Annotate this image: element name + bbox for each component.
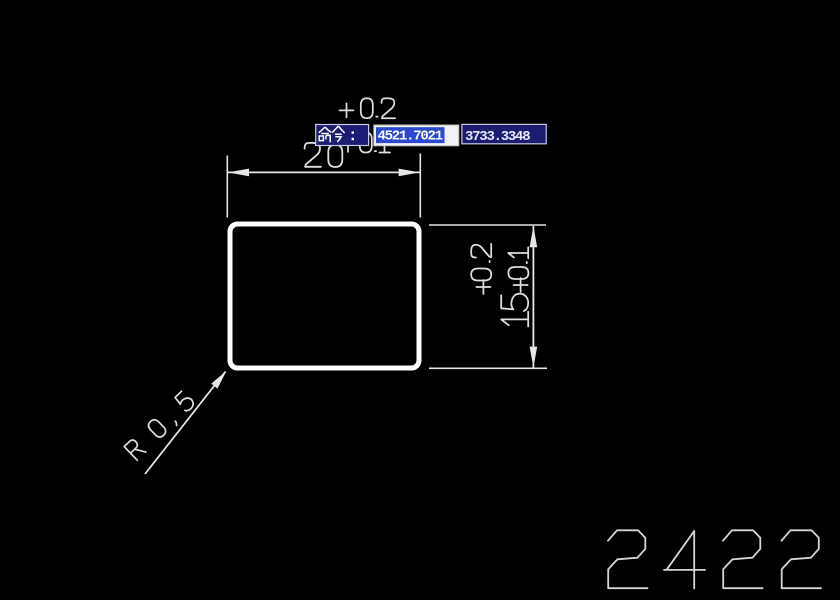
svg-text:3733.3348: 3733.3348 bbox=[465, 129, 530, 145]
svg-text:4521.7021: 4521.7021 bbox=[378, 129, 443, 145]
